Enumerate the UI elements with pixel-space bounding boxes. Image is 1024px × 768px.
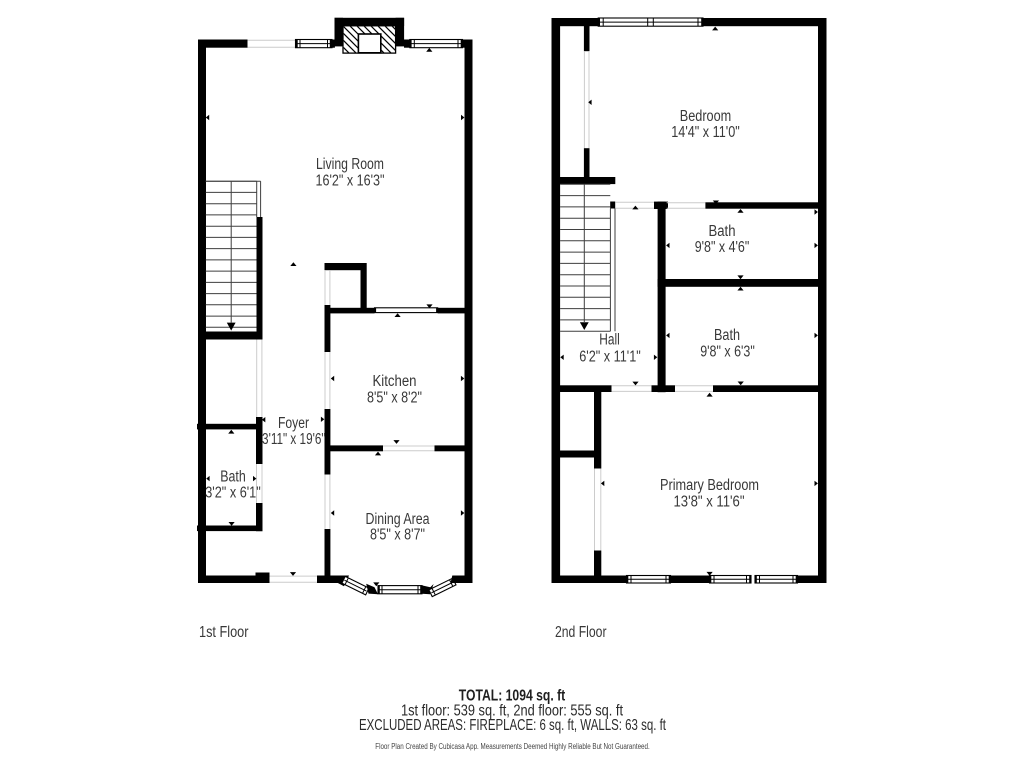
svg-text:Bath: Bath [709, 223, 736, 240]
svg-text:Bath: Bath [220, 469, 246, 486]
svg-text:8'5" x 8'7": 8'5" x 8'7" [370, 527, 425, 544]
svg-text:Primary Bedroom: Primary Bedroom [660, 477, 759, 494]
svg-text:Living Room: Living Room [316, 156, 384, 173]
svg-text:2nd Floor: 2nd Floor [555, 624, 607, 641]
svg-text:16'2" x 16'3": 16'2" x 16'3" [316, 173, 385, 190]
svg-text:Dining Area: Dining Area [366, 511, 430, 528]
svg-text:Floor Plan Created By Cubicasa: Floor Plan Created By Cubicasa App. Meas… [375, 742, 650, 751]
svg-text:3'11" x 19'6": 3'11" x 19'6" [262, 431, 326, 448]
svg-text:Bath: Bath [714, 327, 740, 344]
svg-text:9'8" x 6'3": 9'8" x 6'3" [700, 344, 755, 361]
svg-text:1st Floor: 1st Floor [199, 624, 249, 641]
svg-text:EXCLUDED AREAS: FIREPLACE: 6 s: EXCLUDED AREAS: FIREPLACE: 6 sq. ft, WAL… [359, 717, 667, 734]
svg-text:Bedroom: Bedroom [680, 108, 732, 125]
svg-text:9'8" x 4'6": 9'8" x 4'6" [695, 239, 750, 256]
svg-text:13'8" x 11'6": 13'8" x 11'6" [674, 494, 745, 511]
svg-text:14'4" x 11'0": 14'4" x 11'0" [671, 124, 740, 141]
svg-text:6'2" x 11'1": 6'2" x 11'1" [579, 349, 641, 366]
svg-text:Foyer: Foyer [278, 415, 309, 432]
svg-text:Kitchen: Kitchen [373, 373, 417, 390]
svg-text:8'5" x 8'2": 8'5" x 8'2" [367, 390, 422, 407]
svg-text:Hall: Hall [599, 332, 620, 349]
svg-text:3'2" x 6'1": 3'2" x 6'1" [205, 485, 261, 502]
